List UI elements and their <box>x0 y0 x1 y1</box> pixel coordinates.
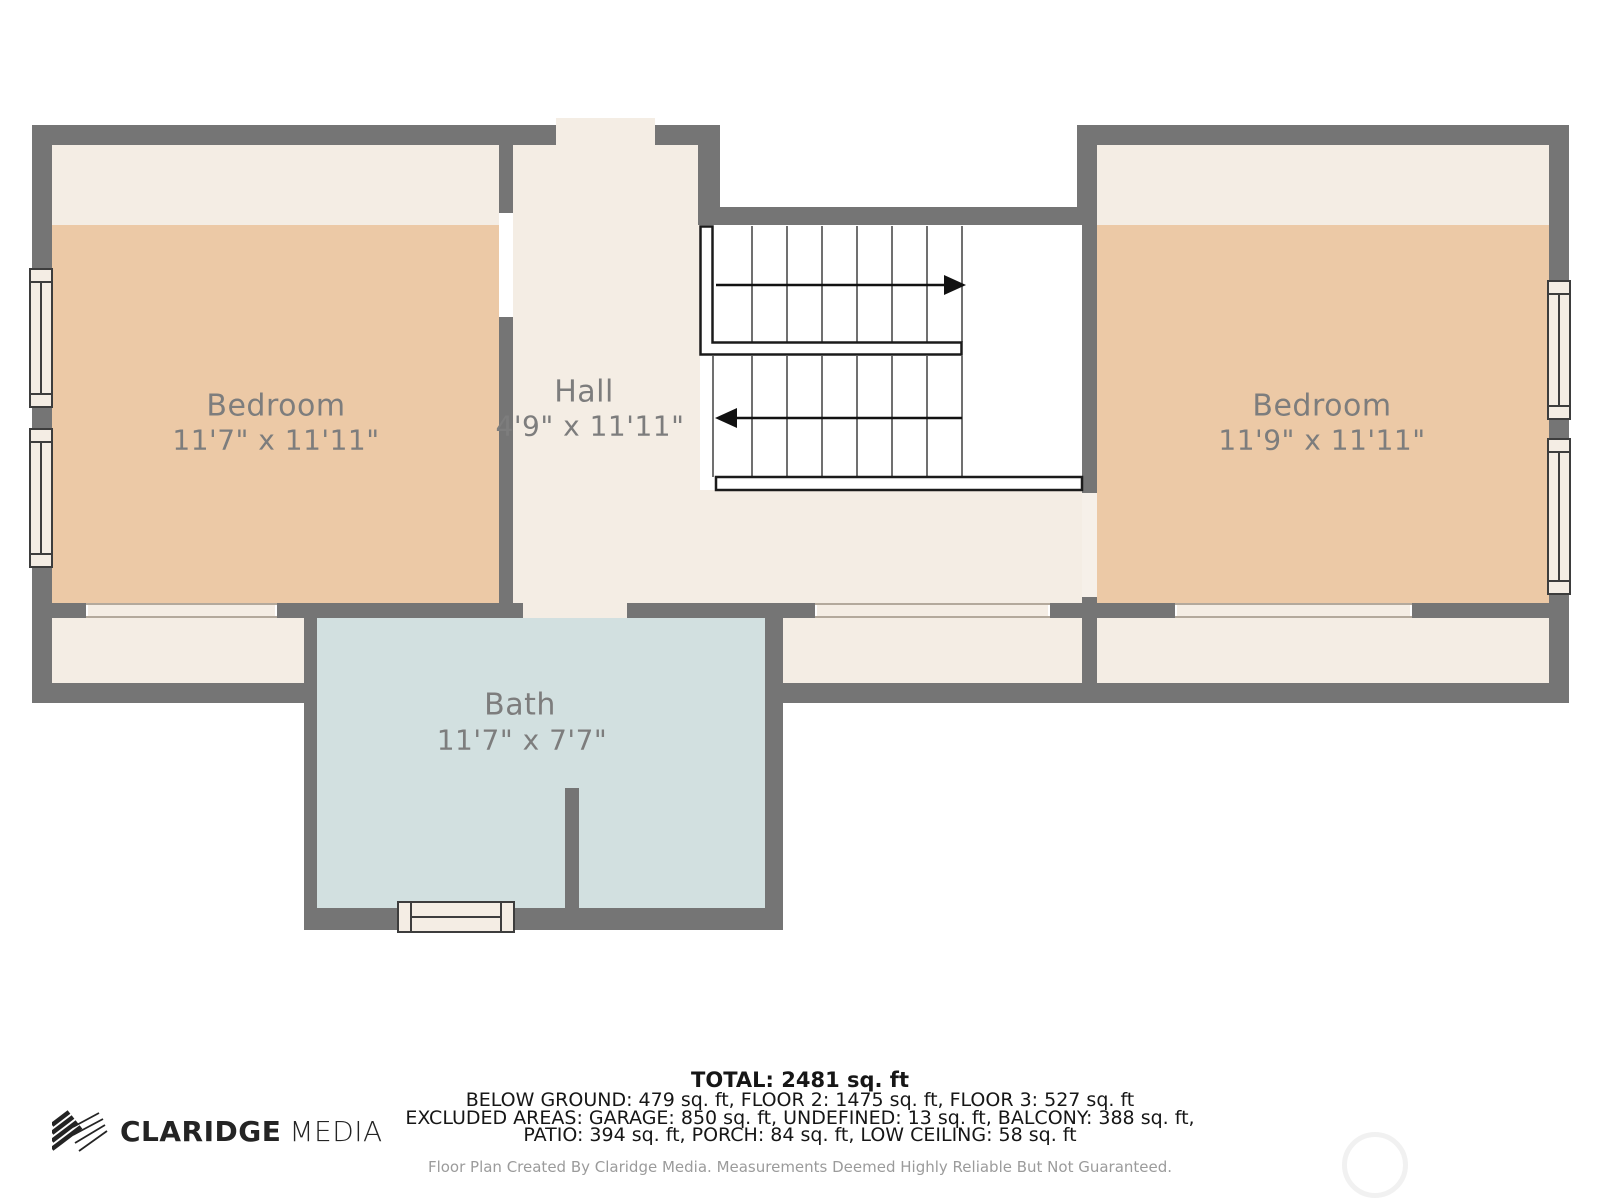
opening-hall-top <box>556 125 655 145</box>
low-ceiling-strip-right <box>1097 618 1549 683</box>
staircase <box>698 222 1090 495</box>
logo-suffix-text: MEDIA <box>289 1115 382 1148</box>
door-opening-bath <box>523 603 627 618</box>
wall-mid-5 <box>1412 603 1549 618</box>
bedroom-left-dimensions: 11'7" x 11'11" <box>172 424 379 457</box>
wall-bottom-right <box>765 683 1569 703</box>
wall-bath-left <box>304 618 317 930</box>
door-opening-bedroom-right <box>1082 493 1097 597</box>
wall-top-hall-right <box>655 125 720 145</box>
footer-total-area: TOTAL: 2481 sq. ft <box>0 1071 1600 1090</box>
wall-top-right-wing <box>1077 125 1569 145</box>
bath-label: Bath <box>484 688 556 723</box>
wall-bath-right <box>765 618 783 930</box>
bedroom-right-label: Bedroom <box>1252 389 1391 424</box>
cased-opening-right-wing <box>1175 603 1412 618</box>
wall-hall-bedroom-left-lower <box>499 317 513 603</box>
wall-bath-stub <box>565 788 579 908</box>
hall-dimensions: 4'9" x 11'11" <box>496 410 685 443</box>
wall-left-exterior <box>32 125 52 703</box>
claridge-media-logo: CLARIDGE MEDIA <box>52 1108 383 1154</box>
wall-bath-bottom <box>304 908 783 930</box>
window-left-2 <box>29 428 53 568</box>
hall-landing-floor <box>700 490 1082 603</box>
bath-floor <box>317 618 765 908</box>
wall-mid-1 <box>52 603 86 618</box>
wall-stairwell-step-vertical <box>698 145 720 207</box>
wall-mid-3 <box>627 603 815 618</box>
floor-plan-page: { "plan": { "rooms": { "bedroom_left": {… <box>0 0 1600 1200</box>
wall-hall-bedroom-left-upper <box>499 143 513 213</box>
window-right-2 <box>1547 438 1571 595</box>
cased-opening-center <box>815 603 1050 618</box>
bedroom-left-label: Bedroom <box>206 389 345 424</box>
bath-dimensions: 11'7" x 7'7" <box>437 724 608 757</box>
stair-landing-bar <box>716 477 1082 490</box>
wall-right-wing-upper <box>1077 145 1097 225</box>
wall-mid-2 <box>277 603 523 618</box>
low-ceiling-strip-left <box>52 618 304 683</box>
stair-railing <box>701 227 962 355</box>
cased-opening-left-wing <box>86 603 277 618</box>
window-bath <box>397 901 515 933</box>
window-right-1 <box>1547 280 1571 420</box>
door-opening-bedroom-left <box>499 213 513 317</box>
bedroom-right-dimensions: 11'9" x 11'11" <box>1218 424 1425 457</box>
wall-bottom-left <box>32 683 317 703</box>
window-left-1 <box>29 268 53 408</box>
claridge-stripes-icon <box>52 1110 108 1152</box>
low-ceiling-strip-center <box>783 618 1082 683</box>
stair-treads-lower <box>713 356 962 477</box>
wall-mid-4 <box>1050 603 1175 618</box>
stair-arrow-right-icon <box>716 275 966 295</box>
wall-top-left <box>32 125 556 145</box>
watermark-circle <box>1342 1132 1408 1198</box>
hall-label: Hall <box>554 375 614 410</box>
logo-brand-text: CLARIDGE <box>120 1115 281 1148</box>
floor-plan: Bedroom 11'7" x 11'11" Hall 4'9" x 11'11… <box>0 0 1600 1200</box>
